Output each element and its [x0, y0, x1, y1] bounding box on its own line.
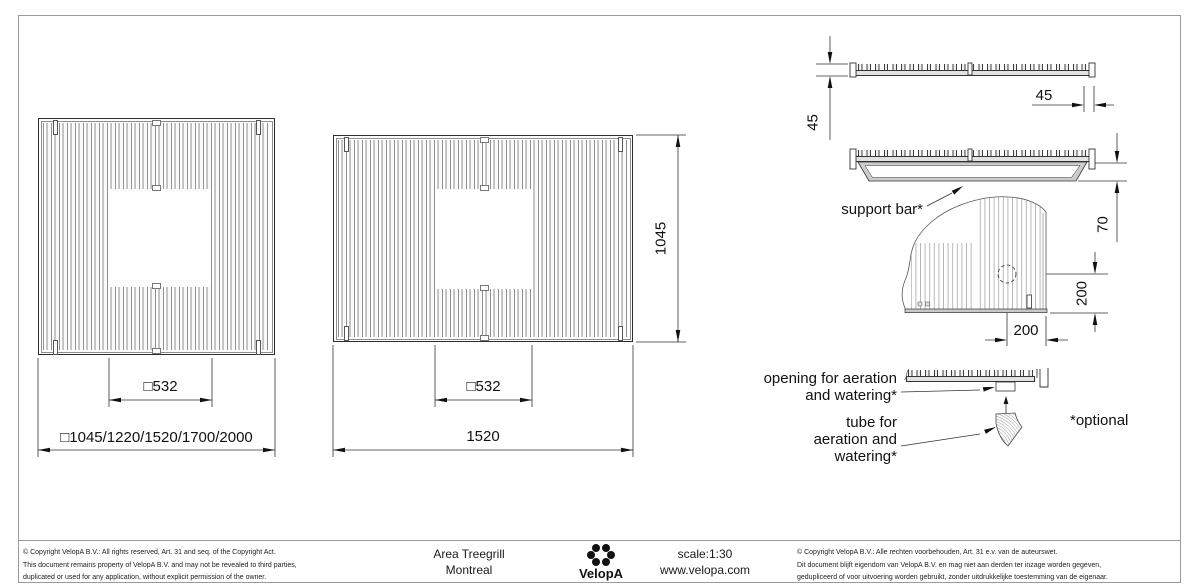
dim-profile-height: 45 — [805, 95, 822, 151]
opening-label-line1: opening for aeration — [737, 370, 897, 387]
support-bar-label: support bar* — [795, 201, 923, 218]
dim-rect-width: 1520 — [333, 428, 633, 445]
rect-grill-plan-view — [333, 135, 633, 342]
dim-corner-vertical: 200 — [1074, 266, 1091, 322]
profile-bar — [854, 70, 1091, 76]
copyright-en-line1: © Copyright VelopA B.V.: All rights rese… — [23, 547, 297, 560]
dim-corner-horizontal: 200 — [1001, 322, 1051, 339]
title-block-divider — [18, 540, 1181, 541]
tube-label-line1: tube for — [737, 414, 897, 431]
dim-profile-edge: 45 — [1024, 87, 1064, 104]
copyright-dutch: © Copyright VelopA B.V.: Alle rechten vo… — [797, 547, 1108, 585]
copyright-nl-line3: gedupliceerd of voor uitvoering worden g… — [797, 572, 1108, 585]
grill-with-support-profile-view — [850, 148, 1095, 164]
clip-detail — [480, 137, 489, 143]
aeration-profile-view — [905, 370, 1036, 384]
opening-label-line2: and watering* — [737, 387, 897, 404]
optional-note: *optional — [1070, 412, 1128, 429]
profile-bar — [906, 376, 1035, 382]
clip-detail — [480, 285, 489, 291]
product-title: Area Treegrill Montreal — [394, 546, 544, 578]
dim-square-inner: □532 — [109, 378, 212, 395]
fixing-post — [53, 120, 58, 135]
clip-detail — [152, 120, 161, 126]
profile-bar — [854, 156, 1091, 162]
product-name: Area Treegrill — [394, 546, 544, 562]
tube-label-line3: watering* — [737, 448, 897, 465]
tube-label: tube for aeration and watering* — [737, 414, 897, 465]
copyright-en-line2: This document remains property of VelopA… — [23, 560, 297, 573]
square-grill-plan-view — [38, 118, 275, 355]
dim-rect-inner: □532 — [435, 378, 532, 395]
clip-detail — [480, 335, 489, 341]
velopa-flower-logo-icon — [582, 544, 620, 566]
rect-grill-tree-opening — [436, 189, 533, 289]
scale-block: scale:1:30 www.velopa.com — [640, 546, 770, 578]
scale-value: scale:1:30 — [640, 546, 770, 562]
fixing-post — [256, 340, 261, 355]
fixing-post — [344, 137, 349, 152]
clip-detail — [152, 283, 161, 289]
drawing-sheet: □532 □1045/1220/1520/1700/2000 □532 1520… — [0, 0, 1200, 587]
clip-detail — [480, 185, 489, 191]
fixing-post — [344, 326, 349, 341]
dim-square-outer: □1045/1220/1520/1700/2000 — [38, 429, 275, 446]
fixing-post — [256, 120, 261, 135]
fixing-post — [618, 326, 623, 341]
dim-rect-height: 1045 — [653, 211, 670, 267]
copyright-en-line3: duplicated or used for any application, … — [23, 572, 297, 585]
fixing-post — [618, 137, 623, 152]
opening-label: opening for aeration and watering* — [737, 370, 897, 404]
tube-label-line2: aeration and — [737, 431, 897, 448]
dim-assembly-height: 70 — [1095, 197, 1112, 253]
website-url: www.velopa.com — [640, 562, 770, 578]
copyright-english: © Copyright VelopA B.V.: All rights rese… — [23, 547, 297, 585]
copyright-nl-line2: Dit document blijft eigendom van VelopA … — [797, 560, 1108, 573]
fixing-post — [53, 340, 58, 355]
product-model: Montreal — [394, 562, 544, 578]
square-grill-tree-opening — [108, 189, 211, 287]
clip-detail — [152, 185, 161, 191]
brand-name: VelopA — [575, 566, 627, 581]
grill-side-profile-view — [850, 62, 1095, 80]
copyright-nl-line1: © Copyright VelopA B.V.: Alle rechten vo… — [797, 547, 1108, 560]
clip-detail — [152, 348, 161, 354]
